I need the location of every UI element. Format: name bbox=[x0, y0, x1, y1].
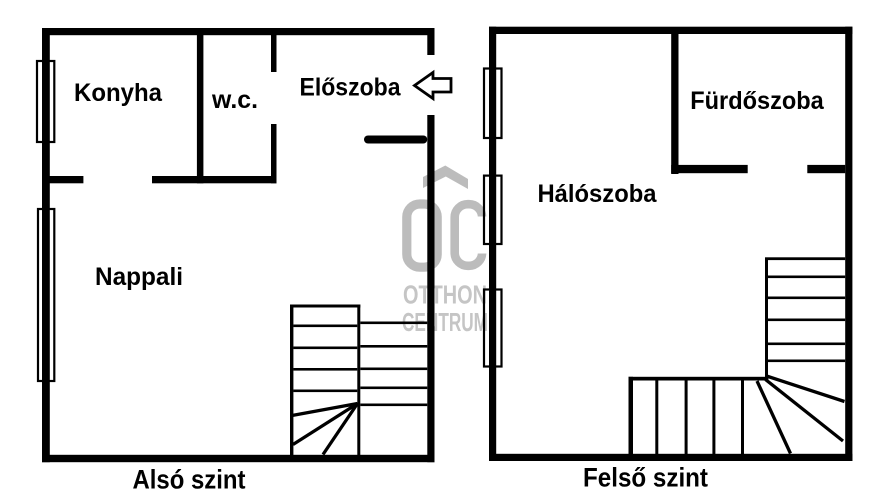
svg-text:Nappali: Nappali bbox=[95, 263, 183, 291]
svg-text:Konyha: Konyha bbox=[74, 79, 163, 107]
svg-text:OTTHON: OTTHON bbox=[403, 280, 487, 310]
svg-text:Előszoba: Előszoba bbox=[300, 74, 402, 102]
svg-text:Hálószoba: Hálószoba bbox=[538, 180, 658, 208]
svg-text:Felső szint: Felső szint bbox=[583, 463, 708, 493]
svg-text:Alsó szint: Alsó szint bbox=[133, 465, 246, 495]
svg-text:w.c.: w.c. bbox=[211, 86, 258, 114]
svg-text:Fürdőszoba: Fürdőszoba bbox=[690, 87, 825, 115]
